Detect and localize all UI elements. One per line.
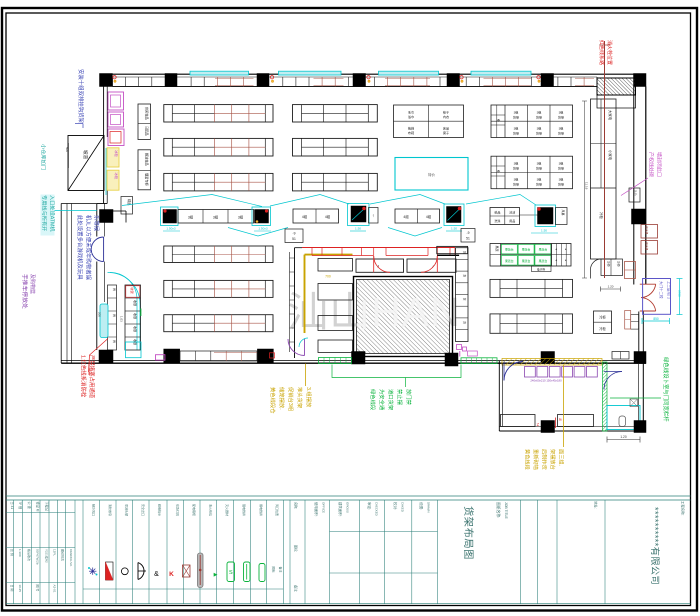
svg-text:收银: 收银: [130, 288, 135, 294]
svg-text:DRAWING NO.: DRAWING NO.: [69, 549, 73, 567]
svg-text:3组: 3组: [537, 161, 542, 166]
svg-text:图纸名称:: 图纸名称:: [496, 502, 501, 518]
svg-text:3组: 3组: [514, 161, 519, 166]
svg-text:3组: 3组: [238, 215, 244, 220]
svg-text:收银: 收银: [133, 300, 138, 306]
svg-text:果蔬台: 果蔬台: [522, 258, 531, 263]
svg-text:手推车停放处: 手推车停放处: [21, 274, 29, 309]
svg-text:CHKED: CHKED: [401, 502, 405, 512]
svg-text:应急灯具: 应急灯具: [176, 504, 181, 516]
svg-text:货: 货: [463, 298, 467, 301]
svg-text:上二层吊门: 上二层吊门: [667, 281, 672, 299]
svg-text:收银: 收银: [133, 313, 138, 319]
svg-text:安装十组双排挂钩货架: 安装十组双排挂钩货架: [77, 69, 85, 124]
svg-text:公 查: 公 查: [27, 502, 32, 510]
svg-text:**********有限公司: **********有限公司: [650, 507, 661, 585]
svg-text:1.03: 1.03: [120, 316, 124, 322]
svg-text:1.红色线系消防栓: 1.红色线系消防栓: [80, 355, 88, 398]
svg-text:3组: 3组: [559, 177, 564, 182]
svg-text:袜子: 袜子: [443, 110, 449, 115]
svg-text:850: 850: [653, 317, 659, 321]
svg-text:用品: 用品: [509, 219, 515, 223]
svg-text:专用线与所有开: 专用线与所有开: [41, 195, 49, 231]
svg-text:3组: 3组: [514, 126, 519, 131]
svg-text:此处设置多台游戏机及玩具: 此处设置多台游戏机及玩具: [76, 215, 84, 280]
svg-text:3组: 3组: [188, 215, 194, 220]
svg-text:安全出口: 安全出口: [141, 504, 146, 516]
svg-text:果蔬台: 果蔬台: [505, 247, 514, 252]
svg-text:GROSS: GROSS: [346, 502, 350, 513]
svg-text:堆头货架: 堆头货架: [296, 387, 304, 409]
svg-text:墙封闭此口: 墙封闭此口: [656, 152, 663, 177]
svg-text:弱电线井: 弱电线井: [259, 504, 264, 516]
svg-text:台: 台: [113, 340, 118, 343]
svg-text:3组: 3组: [537, 177, 542, 182]
svg-text:冷柜: 冷柜: [599, 315, 606, 320]
svg-text:产权线处砌: 产权线处砌: [648, 152, 655, 177]
svg-text:3组: 3组: [514, 110, 519, 115]
svg-text:风幕: 风幕: [561, 210, 566, 216]
svg-text:图标: 图标: [272, 567, 277, 573]
svg-text:图标:: 图标:: [294, 545, 299, 552]
svg-text:收银: 收银: [133, 326, 138, 332]
svg-text:绿色线设卜室与门同宽栏杆: 绿色线设卜室与门同宽栏杆: [662, 357, 670, 422]
svg-text:备注:: 备注:: [294, 585, 299, 592]
svg-text:消防卷帘: 消防卷帘: [108, 504, 113, 516]
svg-text:1.50: 1.50: [541, 228, 547, 232]
svg-text:内衣: 内衣: [443, 114, 449, 119]
svg-text:使用面积:: 使用面积:: [314, 502, 319, 517]
svg-text:果蔬台: 果蔬台: [539, 247, 548, 252]
svg-text:消火栓位: 消火栓位: [209, 504, 214, 516]
svg-text:配电箱柜: 配电箱柜: [192, 504, 197, 516]
svg-text:货架: 货架: [536, 115, 542, 120]
svg-text:CHECKED: CHECKED: [375, 502, 379, 516]
svg-text:4组: 4组: [426, 214, 432, 219]
svg-text:OFFICE: OFFICE: [322, 502, 326, 513]
svg-text:烟酒专柜: 烟酒专柜: [145, 173, 150, 187]
svg-text:240x60x210 150x45x180: 240x60x210 150x45x180: [530, 379, 562, 383]
svg-text:货架: 货架: [558, 166, 564, 171]
svg-text:3组: 3组: [537, 110, 542, 115]
svg-text:入口处设ATM机: 入口处设ATM机: [49, 195, 57, 232]
svg-text:毛巾: 毛巾: [408, 110, 414, 115]
svg-text:1:100: 1:100: [18, 549, 22, 557]
svg-text:果蔬台: 果蔬台: [522, 247, 531, 252]
svg-text:拖鞋: 拖鞋: [408, 126, 414, 131]
svg-text:Y2J1续R2: Y2J1续R2: [45, 549, 50, 563]
svg-text:黄色线段: 黄色线段: [524, 449, 532, 470]
svg-text:果蔬台: 果蔬台: [505, 258, 514, 263]
svg-text:强电线井: 强电线井: [242, 504, 247, 516]
svg-text:休闲食品: 休闲食品: [145, 107, 150, 120]
svg-text:果蔬: 果蔬: [495, 246, 500, 252]
svg-text:小仓库加门: 小仓库加门: [40, 144, 48, 170]
svg-text:-9: -9: [293, 232, 296, 236]
svg-text:下程记: 下程记: [45, 502, 50, 512]
svg-text:比 例: 比 例: [10, 549, 15, 556]
svg-text:货架: 货架: [536, 166, 542, 171]
svg-text:乐等候: 乐等候: [93, 215, 101, 232]
svg-text:电子秤: 电子秤: [537, 267, 546, 271]
svg-text:货架: 货架: [513, 115, 519, 120]
svg-text:-9: -9: [467, 231, 470, 235]
svg-text:日 41: 日 41: [10, 502, 14, 510]
svg-text:纸品: 纸品: [494, 210, 500, 215]
svg-text:校对:: 校对:: [393, 502, 398, 510]
svg-text:饮水机: 饮水机: [645, 242, 649, 251]
svg-text:禁止摆: 禁止摆: [396, 389, 404, 406]
svg-text:面三组.: 面三组.: [558, 449, 566, 466]
svg-text:台: 台: [113, 288, 118, 291]
svg-text:格设敬次: 格设敬次: [27, 549, 32, 561]
svg-text:机JL以方便未成年购物者娱: 机JL以方便未成年购物者娱: [85, 215, 93, 281]
svg-text:12PL: 12PL: [53, 549, 57, 556]
svg-text:备注: 备注: [279, 567, 284, 573]
svg-text:制冷风口: 制冷风口: [92, 504, 97, 516]
svg-text:严禁堵塞占用通道: 严禁堵塞占用通道: [88, 355, 96, 399]
svg-text:冷柜: 冷柜: [607, 261, 611, 267]
svg-text:绿色线段: 绿色线段: [369, 389, 377, 411]
svg-text:冷柜: 冷柜: [617, 261, 621, 267]
svg-text:果蔬台: 果蔬台: [539, 258, 548, 263]
svg-text:货: 货: [463, 274, 467, 277]
svg-text:消火栓位置: 消火栓位置: [606, 40, 613, 65]
svg-text:51: 51: [292, 237, 296, 241]
svg-text:▶: ▶: [214, 572, 218, 578]
svg-text:JOB TITLE: JOB TITLE: [504, 502, 508, 519]
svg-text:浴巾: 浴巾: [408, 114, 414, 119]
svg-text:3组: 3组: [213, 215, 219, 220]
svg-text:坡道: 坡道: [82, 150, 89, 159]
svg-text:及购物篮: 及购物篮: [29, 274, 36, 294]
svg-text:货: 货: [463, 251, 467, 254]
svg-text:清洁: 清洁: [509, 210, 515, 215]
svg-text:大家电: 大家电: [608, 110, 613, 121]
svg-text:小家电: 小家电: [608, 150, 613, 161]
svg-text:1.50x3: 1.50x3: [258, 226, 268, 230]
svg-text:洗涤: 洗涤: [494, 218, 500, 223]
svg-text:储笼摆放.: 储笼摆放.: [278, 387, 286, 410]
svg-text:为安全通: 为安全通: [378, 389, 386, 411]
svg-text:货架: 货架: [513, 182, 519, 187]
svg-text:货: 货: [463, 321, 467, 324]
svg-text:03P67W.2b: 03P67W.2b: [36, 549, 40, 565]
svg-text:建筑面积:: 建筑面积:: [338, 502, 343, 517]
svg-text:图纸张次: 图纸张次: [61, 549, 66, 561]
svg-text:货架: 货架: [513, 131, 519, 136]
svg-text:3组: 3组: [514, 177, 519, 182]
svg-text:审定:: 审定:: [367, 502, 372, 510]
svg-text:货架: 货架: [558, 131, 564, 136]
svg-text:3700: 3700: [678, 290, 682, 297]
svg-text:特价: 特价: [428, 172, 435, 177]
svg-text:灭火器材: 灭火器材: [225, 504, 230, 516]
svg-text:日 期: 日 期: [10, 585, 15, 592]
svg-text:3.组摆放: 3.组摆放: [305, 387, 313, 408]
svg-text:冷柜: 冷柜: [599, 326, 606, 331]
svg-text:S: S: [229, 570, 233, 576]
svg-text:☂: ☂: [497, 118, 501, 123]
svg-text:7F 别: 7F 别: [18, 502, 23, 510]
svg-text:风口位置: 风口位置: [275, 504, 280, 516]
svg-text:席子: 席子: [443, 130, 449, 135]
svg-text:促销台3组: 促销台3组: [287, 387, 295, 412]
svg-text:大门十二樘: 大门十二樘: [659, 281, 664, 299]
svg-text:人小: 人小: [634, 190, 639, 196]
svg-text:11.19: 11.19: [585, 182, 589, 190]
svg-text:3组: 3组: [559, 110, 564, 115]
svg-text:货架: 货架: [536, 131, 542, 136]
svg-text:↑: ↑: [372, 213, 374, 218]
svg-text:喷淋头部: 喷淋头部: [125, 504, 130, 516]
svg-text:疏散指示: 疏散指示: [158, 504, 163, 516]
svg-text:道口货架: 道口货架: [387, 389, 395, 411]
svg-text:DRAWN: DRAWN: [427, 502, 431, 512]
svg-text:1.50x3: 1.50x3: [166, 226, 176, 230]
svg-text:出: 出: [559, 418, 564, 421]
svg-text:货架: 货架: [513, 166, 519, 171]
svg-text:3组: 3组: [559, 126, 564, 131]
svg-text:4组: 4组: [325, 214, 331, 219]
svg-text:☂: ☂: [497, 169, 501, 174]
svg-text:重新砌墙: 重新砌墙: [532, 449, 540, 470]
svg-text:1.20: 1.20: [620, 435, 626, 439]
svg-text:粮油食品: 粮油食品: [145, 153, 150, 166]
svg-text:饮水机: 饮水机: [645, 226, 649, 235]
svg-text:后制作货: 后制作货: [541, 449, 549, 470]
svg-text:工程名称:: 工程名称:: [681, 501, 686, 516]
svg-text:红色线系路: 红色线系路: [598, 40, 605, 65]
svg-text:A2-01: A2-01: [53, 585, 57, 593]
svg-text:黄色线段仓: 黄色线段仓: [269, 387, 277, 414]
svg-text:3组: 3组: [537, 126, 542, 131]
svg-text:4组: 4组: [302, 214, 308, 219]
svg-text:51: 51: [466, 237, 470, 241]
svg-text:名称:: 名称:: [294, 502, 299, 509]
svg-text:货架: 货架: [558, 115, 564, 120]
svg-text:放门禁: 放门禁: [405, 389, 413, 406]
svg-text:&: &: [154, 571, 159, 578]
svg-text:货架布局图: 货架布局图: [462, 506, 475, 560]
svg-text:500: 500: [65, 147, 69, 152]
svg-text:架摆放台: 架摆放台: [549, 449, 557, 470]
svg-text:台: 台: [113, 314, 118, 317]
svg-text:布鞋: 布鞋: [408, 130, 414, 135]
svg-text:1.50: 1.50: [451, 226, 457, 230]
svg-text:1.20: 1.20: [608, 285, 614, 289]
svg-text:地址:: 地址:: [594, 501, 599, 509]
svg-text:修设 M: 修设 M: [36, 502, 41, 512]
svg-text:冰柜: 冰柜: [114, 173, 119, 180]
svg-text:700: 700: [325, 275, 331, 279]
svg-text:床品: 床品: [443, 126, 449, 131]
svg-text:3组: 3组: [559, 161, 564, 166]
svg-text:冷柜: 冷柜: [599, 212, 604, 219]
svg-text:4组: 4组: [403, 214, 409, 219]
svg-text:日配品: 日配品: [145, 126, 150, 136]
svg-text:K: K: [169, 571, 174, 578]
svg-text:1.50: 1.50: [355, 226, 361, 230]
svg-text:设图:: 设图:: [419, 502, 424, 510]
svg-text:冰柜: 冰柜: [114, 150, 119, 157]
svg-text:10.25: 10.25: [18, 585, 22, 593]
svg-text:货架: 货架: [536, 182, 542, 187]
svg-text:货架: 货架: [558, 182, 564, 187]
svg-text:200: 200: [98, 312, 102, 317]
svg-text:图 号: 图 号: [36, 585, 41, 592]
